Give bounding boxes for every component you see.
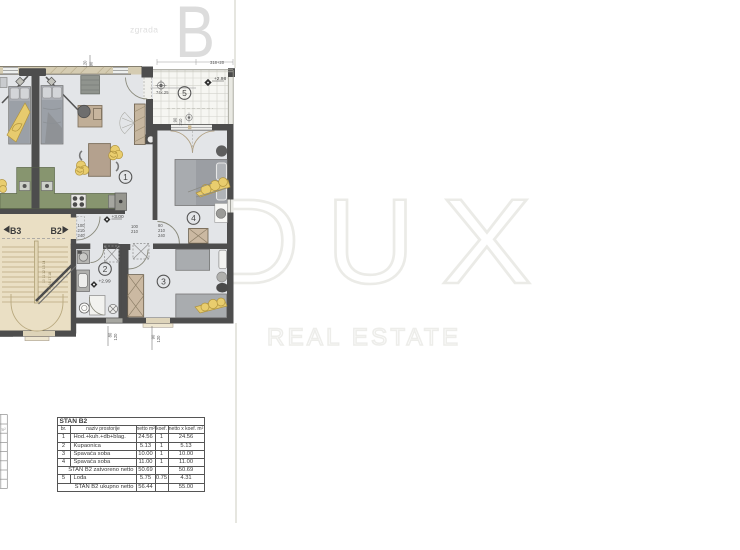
svg-text:B2: B2 bbox=[51, 226, 62, 236]
svg-text:X: X bbox=[441, 173, 532, 309]
svg-text:REAL ESTATE: REAL ESTATE bbox=[267, 324, 464, 351]
svg-text:1: 1 bbox=[123, 172, 128, 182]
svg-text:240: 240 bbox=[78, 233, 86, 238]
svg-text:210: 210 bbox=[131, 229, 139, 234]
svg-text:5: 5 bbox=[182, 88, 187, 98]
svg-text:m²: m² bbox=[1, 427, 7, 432]
svg-text:120: 120 bbox=[113, 333, 118, 341]
svg-text:90: 90 bbox=[89, 61, 94, 66]
svg-text:2: 2 bbox=[103, 264, 108, 274]
svg-text:10 11 12 13 14: 10 11 12 13 14 bbox=[42, 261, 46, 283]
svg-text:zgrada: zgrada bbox=[130, 25, 158, 35]
svg-text:120: 120 bbox=[156, 335, 161, 343]
svg-text:90: 90 bbox=[173, 117, 178, 122]
svg-text:318+20: 318+20 bbox=[210, 60, 225, 65]
svg-text:U: U bbox=[326, 173, 415, 309]
svg-text:3: 3 bbox=[161, 277, 166, 287]
svg-text:74x.25: 74x.25 bbox=[156, 90, 169, 95]
svg-text:120: 120 bbox=[83, 60, 88, 68]
svg-text:4: 4 bbox=[191, 213, 196, 223]
svg-text:210: 210 bbox=[178, 118, 183, 126]
svg-text:90: 90 bbox=[151, 334, 156, 339]
svg-text:B3: B3 bbox=[10, 226, 21, 236]
svg-text:15 16 17 18: 15 16 17 18 bbox=[48, 272, 52, 290]
svg-text:240: 240 bbox=[158, 233, 166, 238]
svg-text:+2.99: +2.99 bbox=[99, 279, 111, 285]
